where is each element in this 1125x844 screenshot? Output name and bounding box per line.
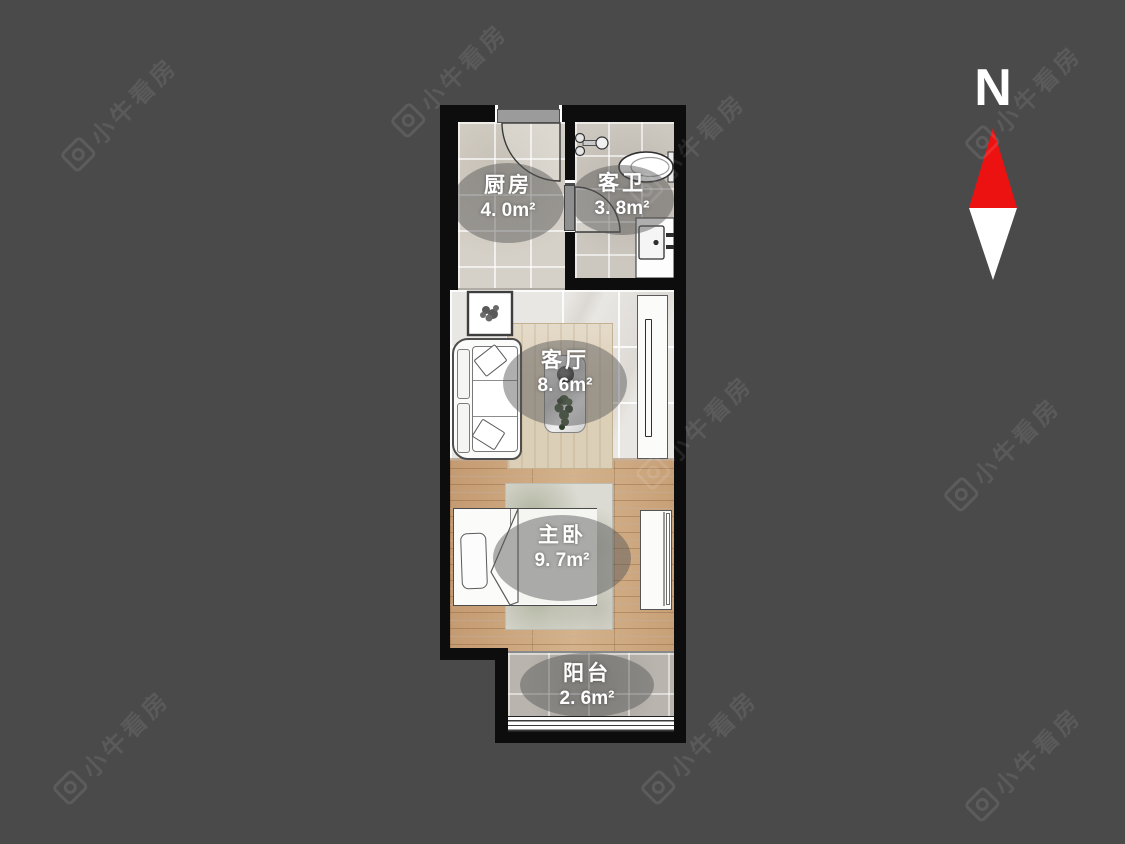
camera-icon bbox=[51, 768, 89, 806]
camera-icon bbox=[963, 785, 1001, 823]
kitchen-label-bubble bbox=[452, 163, 564, 243]
compass-arrow-icon bbox=[967, 126, 1019, 282]
wall-left bbox=[440, 105, 450, 658]
entrance-door-leaf bbox=[497, 109, 560, 123]
balcony-label-bubble bbox=[520, 653, 654, 717]
floorplan-page: 厨房 4. 0m² 客卫 3. 8m² 客厅 8. 6m² 主卧 9. 7m² … bbox=[0, 0, 1125, 844]
wall-kitchen-left-extra bbox=[450, 105, 458, 290]
bathroom-label-bubble bbox=[570, 165, 674, 235]
wall-bottom bbox=[508, 732, 686, 743]
camera-icon bbox=[389, 101, 427, 139]
watermark: 小牛看房 bbox=[960, 698, 1089, 827]
living-label-bubble bbox=[503, 340, 627, 426]
camera-icon bbox=[639, 768, 677, 806]
bedroom-label-bubble bbox=[493, 515, 631, 601]
wall-step-vertical bbox=[495, 648, 508, 743]
camera-icon bbox=[942, 475, 980, 513]
wall-divider-upper bbox=[565, 105, 575, 183]
floor-plan: 厨房 4. 0m² 客卫 3. 8m² 客厅 8. 6m² 主卧 9. 7m² … bbox=[440, 105, 686, 743]
balcony-window bbox=[508, 716, 674, 732]
faucet-icon bbox=[576, 134, 609, 156]
picture-frame bbox=[468, 292, 512, 335]
compass-arrow-white bbox=[969, 208, 1017, 280]
watermark: 小牛看房 bbox=[56, 48, 185, 177]
bathroom-door-leaf bbox=[564, 185, 575, 231]
bathroom-door-jamb bbox=[565, 180, 575, 183]
wall-bathroom-bottom bbox=[565, 278, 686, 290]
watermark: 小牛看房 bbox=[48, 681, 177, 810]
wall-right bbox=[674, 105, 686, 743]
compass-north-label: N bbox=[965, 58, 1021, 118]
watermark: 小牛看房 bbox=[939, 388, 1068, 517]
wall-top-right bbox=[562, 105, 686, 122]
camera-icon bbox=[59, 135, 97, 173]
compass-arrow-red bbox=[969, 128, 1017, 208]
